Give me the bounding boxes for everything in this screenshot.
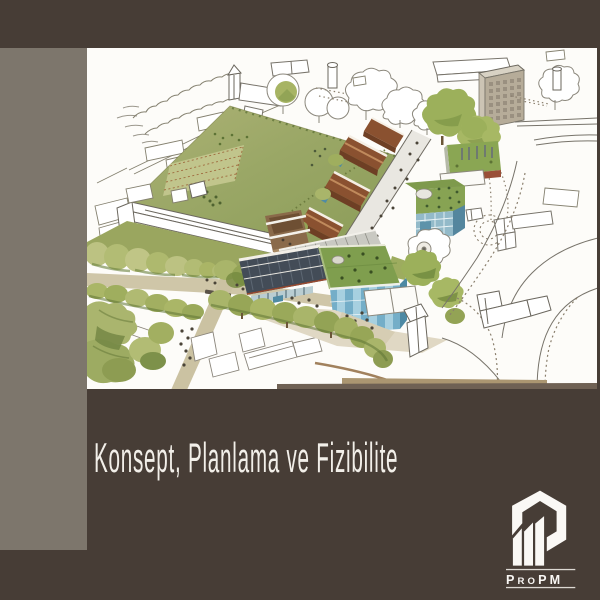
svg-text:PROPM: PROPM	[506, 573, 563, 587]
